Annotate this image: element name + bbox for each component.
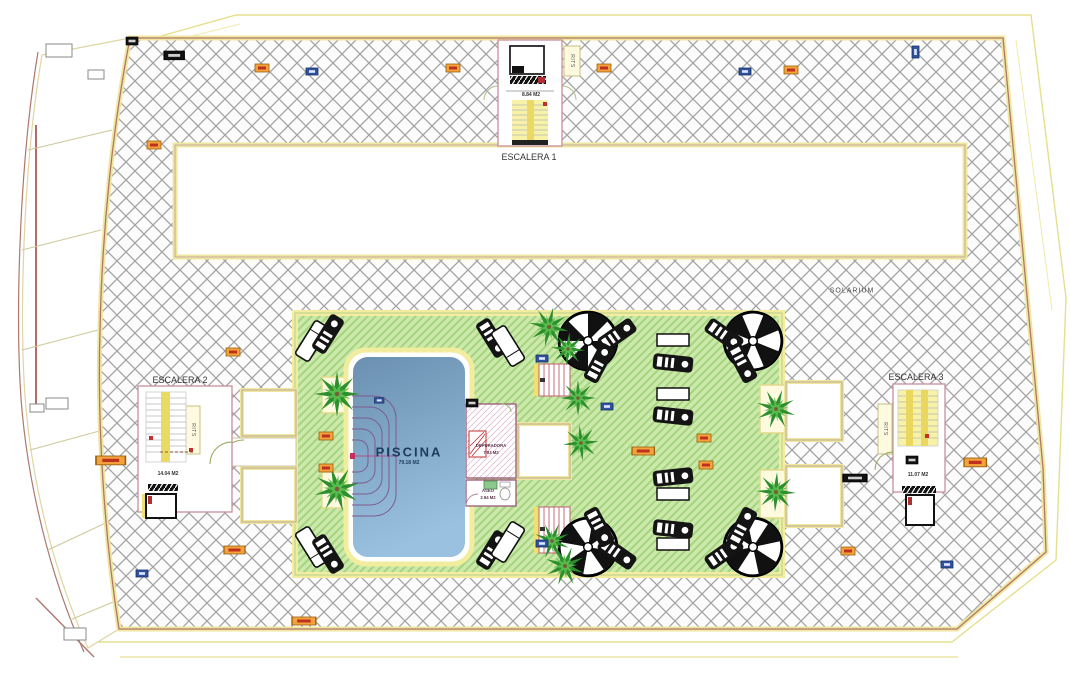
side-table-icon (657, 334, 689, 346)
pool-title: PISCINA (376, 445, 443, 460)
utility-marker-orange (784, 66, 798, 74)
palm-tree-icon (560, 380, 596, 416)
utility-marker-orange (147, 141, 161, 149)
rooftop-floor-plan: ESCALERA 1 8.84 M2 RITS ESCALERA 2 14.04… (0, 0, 1070, 682)
side-table-icon (657, 488, 689, 500)
escalera3-title: ESCALERA 3 (888, 372, 943, 382)
utility-marker-orange (292, 617, 316, 625)
side-table-icon (657, 538, 689, 550)
aseo-area: 2.94 M2 (480, 495, 495, 500)
pool-area: 79.18 M2 (399, 460, 420, 466)
escalera2-area: 14.04 M2 (158, 471, 179, 477)
palm-tree-icon (314, 371, 360, 417)
floor-plan-canvas (0, 0, 1070, 682)
utility-marker-orange (226, 348, 240, 356)
utility-marker-orange (319, 432, 333, 440)
side-table-icon (657, 388, 689, 400)
utility-marker-orange (699, 461, 713, 469)
utility-marker-orange (255, 64, 269, 72)
depuradora-area: 7.83 M2 (483, 450, 498, 455)
utility-marker-orange (597, 64, 611, 72)
utility-marker-black (843, 474, 867, 482)
utility-marker-black (466, 399, 478, 407)
escalera2-rits-label: RITS (190, 423, 196, 436)
escalera1-rits-label: RITS (569, 54, 575, 67)
utility-marker-black (906, 456, 918, 464)
depuradora-room (466, 399, 516, 478)
pergola-top (534, 364, 570, 396)
utility-marker-blue (536, 540, 548, 547)
utility-marker-blue (941, 561, 953, 568)
utility-marker-blue (912, 46, 919, 58)
utility-marker-orange (964, 458, 986, 467)
utility-marker-orange (96, 456, 125, 465)
utility-marker-blue (739, 68, 751, 75)
utility-marker-black (126, 37, 138, 45)
utility-marker-blue (136, 570, 148, 577)
green-zone-void (518, 424, 570, 478)
escalera1-area: 8.84 M2 (522, 92, 540, 98)
utility-marker-orange (319, 464, 333, 472)
utility-marker-orange (446, 64, 460, 72)
elevator-icon (902, 486, 936, 493)
utility-marker-blue (536, 355, 548, 362)
utility-marker-blue (601, 403, 613, 410)
escalera3-rits-label: RITS (882, 422, 888, 435)
utility-marker-orange (632, 447, 654, 455)
escalera-2-stairwell (138, 386, 232, 518)
escalera1-title: ESCALERA 1 (501, 152, 556, 162)
utility-marker-blue (374, 398, 384, 404)
escalera3-area: 11.07 M2 (908, 472, 929, 478)
depuradora-title: DEPURADORA (476, 443, 506, 448)
aseo-title: ASEO (482, 488, 494, 493)
elevator-icon (148, 484, 178, 491)
escalera2-title: ESCALERA 2 (152, 375, 207, 385)
utility-marker-orange (224, 546, 245, 554)
utility-marker-orange (841, 547, 855, 555)
utility-marker-orange (697, 434, 711, 442)
utility-marker-black (164, 51, 184, 60)
roof-void (175, 145, 965, 257)
utility-marker-blue (306, 68, 318, 75)
solarium-label: SOLARIUM (830, 288, 875, 295)
